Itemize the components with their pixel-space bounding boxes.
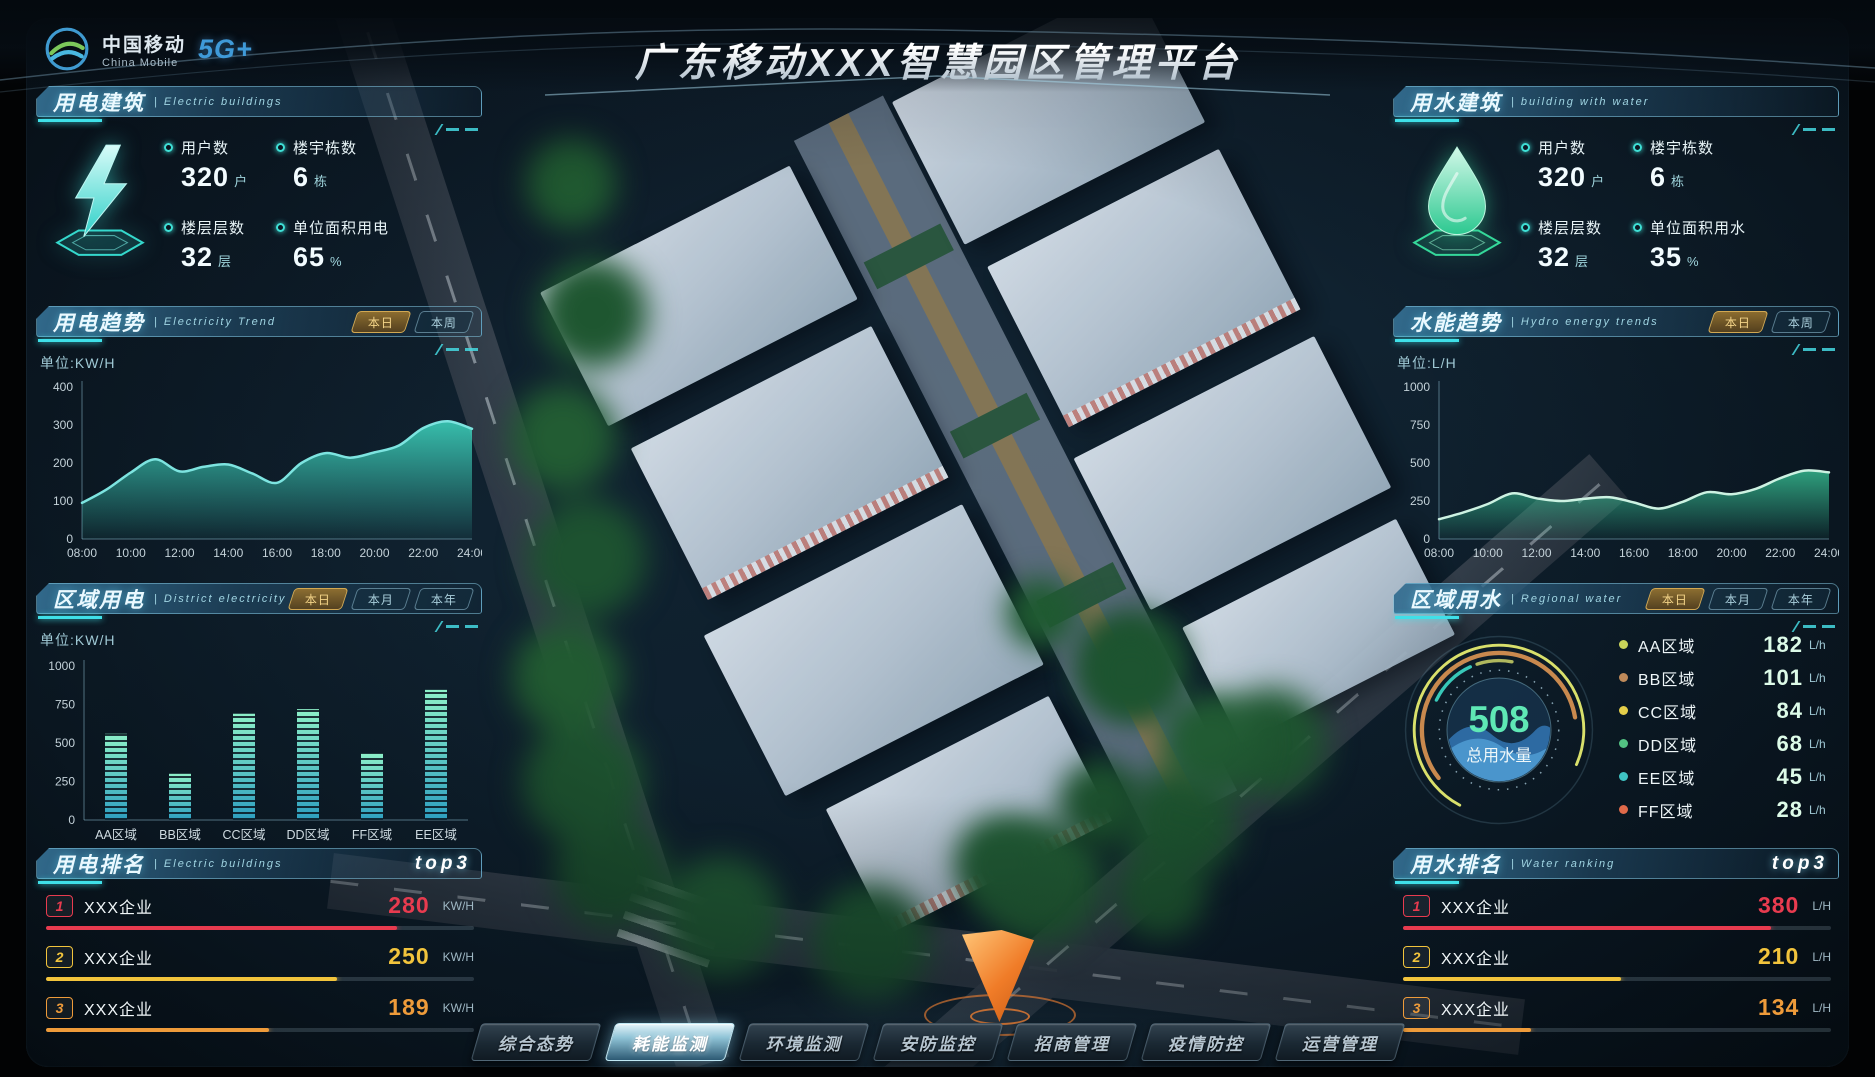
header-decoration: [1795, 344, 1835, 355]
legend-dot: [1619, 673, 1628, 682]
bullet-icon: [1521, 223, 1530, 232]
rank-unit: KW/H: [443, 899, 474, 913]
tab-group: 本日 本周: [1711, 311, 1828, 333]
stat-label: 楼宇栋数: [293, 137, 357, 158]
rank-value: 134: [1758, 994, 1799, 1021]
header-underline: [38, 339, 102, 342]
panel-subtitle: | Electric buildings: [154, 858, 282, 870]
panel-subtitle: | building with water: [1511, 96, 1649, 108]
svg-text:16:00: 16:00: [1619, 546, 1649, 560]
stat-value: 32: [1538, 242, 1570, 272]
panel-title: 水能趋势: [1410, 307, 1502, 337]
water-legend: AA区域 182 L/h BB区域 101 L/h CC区域 84 L/h: [1619, 628, 1835, 826]
tab-group: 本日 本周: [354, 311, 471, 333]
stat-value: 320: [1538, 162, 1586, 192]
panel-title: 区域用电: [53, 584, 145, 614]
tab-month[interactable]: 本月: [1707, 588, 1768, 610]
ranking-row-3: 3 XXX企业 189 KW/H: [46, 994, 474, 1021]
tab-year[interactable]: 本年: [1770, 588, 1831, 610]
nav-overview[interactable]: 综合态势: [470, 1023, 601, 1061]
panel-title: 区域用水: [1410, 584, 1502, 614]
panel-water-ranking: 用水排名 | Water ranking top3 1 XXX企业 380 L/…: [1393, 848, 1839, 1032]
svg-text:100: 100: [53, 494, 73, 508]
district-electricity-chart: 02505007501000AA区域BB区域CC区域DD区域FF区域EE区域: [36, 652, 482, 850]
svg-text:500: 500: [55, 736, 75, 750]
nav-operation-management[interactable]: 运营管理: [1274, 1023, 1405, 1061]
stat-floors: 楼层层数 32层: [164, 217, 276, 273]
svg-text:14:00: 14:00: [213, 546, 243, 560]
stat-value: 320: [181, 162, 229, 192]
ranking-row-2: 2 XXX企业 250 KW/H: [46, 943, 474, 970]
stat-value: 35: [1650, 242, 1682, 272]
stat-label: 单位面积用电: [293, 217, 389, 238]
svg-text:400: 400: [53, 380, 73, 394]
top3-badge: top3: [415, 853, 471, 875]
panel-title: 用水建筑: [1410, 87, 1502, 117]
panel-subtitle: | District electricity: [154, 593, 286, 605]
svg-text:10:00: 10:00: [1473, 546, 1503, 560]
electricity-trend-chart: 010020030040008:0010:0012:0014:0016:0018…: [36, 375, 482, 567]
rank-badge: 3: [46, 997, 73, 1019]
panel-header: 区域用电 | District electricity 本日 本月 本年: [36, 583, 482, 614]
header-underline: [1395, 339, 1459, 342]
svg-text:08:00: 08:00: [1424, 546, 1454, 560]
header-decoration: [438, 344, 478, 355]
tab-month[interactable]: 本月: [350, 588, 411, 610]
svg-text:14:00: 14:00: [1570, 546, 1600, 560]
stat-unit: 层: [1575, 254, 1589, 269]
panel-district-electricity: 区域用电 | District electricity 本日 本月 本年 单位:…: [36, 583, 482, 850]
svg-text:16:00: 16:00: [262, 546, 292, 560]
stat-label: 楼层层数: [181, 217, 245, 238]
panel-header: 区域用水 | Regional water 本日 本月 本年: [1393, 583, 1839, 614]
hydro-trend-chart: 0250500750100008:0010:0012:0014:0016:001…: [1393, 375, 1839, 567]
top3-badge: top3: [1772, 853, 1828, 875]
lightning-icon: [36, 133, 164, 273]
header-underline: [38, 616, 102, 619]
panel-header: 用水排名 | Water ranking top3: [1393, 848, 1839, 879]
bullet-icon: [276, 223, 285, 232]
rank-unit: L/H: [1812, 950, 1831, 964]
svg-text:FF区域: FF区域: [352, 828, 392, 842]
svg-text:500: 500: [1410, 456, 1430, 470]
svg-text:24:00: 24:00: [1814, 546, 1839, 560]
bottom-nav: 综合态势 耗能监测 环境监测 安防监控 招商管理 疫情防控 运营管理: [476, 1023, 1400, 1061]
panel-header: 水能趋势 | Hydro energy trends 本日 本周: [1393, 306, 1839, 337]
panel-electric-ranking: 用电排名 | Electric buildings top3 1 XXX企业 2…: [36, 848, 482, 1032]
stat-value: 6: [1650, 162, 1666, 192]
bullet-icon: [1633, 223, 1642, 232]
dashboard-stage: 中国移动 China Mobile 5G+ 广东移动XXX智慧园区管理平台 用电…: [0, 0, 1875, 1077]
rank-value: 380: [1758, 892, 1799, 919]
svg-text:12:00: 12:00: [1521, 546, 1551, 560]
svg-text:08:00: 08:00: [67, 546, 97, 560]
rank-unit: KW/H: [443, 950, 474, 964]
legend-dot: [1619, 640, 1628, 649]
svg-text:20:00: 20:00: [1716, 546, 1746, 560]
rank-name: XXX企业: [1441, 996, 1510, 1020]
stat-unit-area-power: 单位面积用电 65%: [276, 217, 482, 273]
panel-electricity-trend: 用电趋势 | Electricity Trend 本日 本周 单位:KW/H 0…: [36, 306, 482, 567]
bullet-icon: [1521, 143, 1530, 152]
stat-value: 6: [293, 162, 309, 192]
stat-value: 32: [181, 242, 213, 272]
svg-text:22:00: 22:00: [1765, 546, 1795, 560]
header-decoration: [438, 621, 478, 632]
rank-badge: 2: [46, 946, 73, 968]
tab-today[interactable]: 本日: [1644, 588, 1705, 610]
rank-value: 280: [388, 892, 429, 919]
bullet-icon: [164, 143, 173, 152]
panel-header: 用电建筑 | Electric buildings: [36, 86, 482, 117]
stat-users: 用户数 320户: [164, 137, 276, 193]
tab-year[interactable]: 本年: [413, 588, 474, 610]
rank-bar: [46, 977, 474, 981]
svg-text:22:00: 22:00: [408, 546, 438, 560]
panel-title: 用电建筑: [53, 87, 145, 117]
tab-group: 本日 本月 本年: [1648, 588, 1828, 610]
stat-label: 楼层层数: [1538, 217, 1602, 238]
panel-title: 用电趋势: [53, 307, 145, 337]
nav-environment-monitoring[interactable]: 环境监测: [738, 1023, 869, 1061]
rank-badge: 2: [1403, 946, 1430, 968]
rank-bar: [46, 926, 474, 930]
rank-bar: [1403, 926, 1831, 930]
panel-subtitle: | Hydro energy trends: [1511, 316, 1659, 328]
rank-name: XXX企业: [84, 894, 153, 918]
header-underline: [38, 119, 102, 122]
svg-text:12:00: 12:00: [164, 546, 194, 560]
total-water-value: 508: [1468, 699, 1529, 740]
panel-subtitle: | Regional water: [1511, 593, 1622, 605]
stat-unit: 户: [234, 174, 248, 189]
legend-row-ee: EE区域 45 L/h: [1619, 760, 1835, 793]
stat-unit: 层: [218, 254, 232, 269]
stat-unit: 户: [1591, 174, 1605, 189]
total-water-gauge: 508 总用水量: [1393, 624, 1605, 836]
stat-unit: 栋: [1671, 174, 1685, 189]
stat-unit: 栋: [314, 174, 328, 189]
legend-row-bb: BB区域 101 L/h: [1619, 661, 1835, 694]
stat-unit: %: [1687, 254, 1700, 269]
header-underline: [1395, 119, 1459, 122]
stat-floors: 楼层层数 32层: [1521, 217, 1633, 273]
header-underline: [38, 881, 102, 884]
svg-text:DD区域: DD区域: [286, 828, 329, 842]
tab-group: 本日 本月 本年: [291, 588, 471, 610]
svg-text:200: 200: [53, 456, 73, 470]
chart-unit-label: 单位:KW/H: [40, 353, 482, 373]
legend-row-dd: DD区域 68 L/h: [1619, 727, 1835, 760]
tab-week[interactable]: 本周: [413, 311, 474, 333]
svg-text:CC区域: CC区域: [222, 828, 265, 842]
panel-title: 用电排名: [53, 849, 145, 879]
logo-cn-text: 中国移动: [102, 30, 186, 57]
svg-text:24:00: 24:00: [457, 546, 482, 560]
china-mobile-logo: 中国移动 China Mobile 5G+: [44, 26, 253, 72]
rank-bar: [1403, 1028, 1831, 1032]
panel-electric-building: 用电建筑 | Electric buildings: [36, 86, 482, 273]
total-water-label: 总用水量: [1466, 747, 1532, 765]
svg-text:250: 250: [55, 775, 75, 789]
svg-text:0: 0: [1423, 532, 1430, 546]
stat-unit: %: [330, 254, 343, 269]
panel-subtitle: | Electric buildings: [154, 96, 282, 108]
legend-row-aa: AA区域 182 L/h: [1619, 628, 1835, 661]
stat-buildings: 楼宇栋数 6栋: [276, 137, 482, 193]
chart-unit-label: 单位:L/H: [1397, 353, 1839, 373]
header-decoration: [1795, 621, 1835, 632]
panel-header: 用水建筑 | building with water: [1393, 86, 1839, 117]
nav-energy-monitoring[interactable]: 耗能监测: [604, 1023, 735, 1061]
nav-security-monitoring[interactable]: 安防监控: [872, 1023, 1003, 1061]
rank-name: XXX企业: [84, 945, 153, 969]
svg-text:750: 750: [1410, 418, 1430, 432]
panel-header: 用电排名 | Electric buildings top3: [36, 848, 482, 879]
stat-label: 用户数: [181, 137, 229, 158]
svg-text:0: 0: [68, 813, 75, 827]
svg-text:AA区域: AA区域: [95, 828, 137, 842]
panel-title: 用水排名: [1410, 849, 1502, 879]
panel-subtitle: | Electricity Trend: [154, 316, 276, 328]
stat-label: 单位面积用水: [1650, 217, 1746, 238]
stat-users: 用户数 320户: [1521, 137, 1633, 193]
rank-badge: 1: [1403, 895, 1430, 917]
tab-today[interactable]: 本日: [287, 588, 348, 610]
water-drop-icon: [1393, 133, 1521, 273]
rank-value: 189: [388, 994, 429, 1021]
svg-text:18:00: 18:00: [311, 546, 341, 560]
rank-value: 250: [388, 943, 429, 970]
china-mobile-logo-icon: [44, 26, 90, 72]
stat-buildings: 楼宇栋数 6栋: [1633, 137, 1839, 193]
ranking-row-1: 1 XXX企业 380 L/H: [1403, 892, 1831, 919]
legend-dot: [1619, 805, 1628, 814]
svg-text:750: 750: [55, 698, 75, 712]
rank-bar: [46, 1028, 474, 1032]
stat-value: 65: [293, 242, 325, 272]
legend-dot: [1619, 739, 1628, 748]
rank-value: 210: [1758, 943, 1799, 970]
panel-subtitle: | Water ranking: [1511, 858, 1615, 870]
svg-text:10:00: 10:00: [116, 546, 146, 560]
bullet-icon: [1633, 143, 1642, 152]
svg-text:BB区域: BB区域: [159, 828, 201, 842]
rank-badge: 3: [1403, 997, 1430, 1019]
nav-epidemic-prevention[interactable]: 疫情防控: [1140, 1023, 1271, 1061]
rank-name: XXX企业: [1441, 894, 1510, 918]
tab-today[interactable]: 本日: [350, 311, 411, 333]
svg-text:1000: 1000: [48, 659, 75, 673]
stat-unit-area-water: 单位面积用水 35%: [1633, 217, 1839, 273]
chart-unit-label: 单位:KW/H: [40, 630, 482, 650]
svg-text:18:00: 18:00: [1668, 546, 1698, 560]
rank-bar: [1403, 977, 1831, 981]
svg-text:1000: 1000: [1403, 380, 1430, 394]
bullet-icon: [276, 143, 285, 152]
svg-text:250: 250: [1410, 494, 1430, 508]
ranking-row-1: 1 XXX企业 280 KW/H: [46, 892, 474, 919]
legend-row-cc: CC区域 84 L/h: [1619, 694, 1835, 727]
panel-water-building: 用水建筑 | building with water: [1393, 86, 1839, 273]
rank-unit: KW/H: [443, 1001, 474, 1015]
svg-text:0: 0: [66, 532, 73, 546]
legend-dot: [1619, 706, 1628, 715]
svg-text:20:00: 20:00: [359, 546, 389, 560]
panel-header: 用电趋势 | Electricity Trend 本日 本周: [36, 306, 482, 337]
ranking-row-3: 3 XXX企业 134 L/H: [1403, 994, 1831, 1021]
stat-label: 用户数: [1538, 137, 1586, 158]
rank-name: XXX企业: [84, 996, 153, 1020]
header-decoration: [1795, 124, 1835, 135]
tab-today[interactable]: 本日: [1707, 311, 1768, 333]
header-underline: [1395, 881, 1459, 884]
rank-unit: L/H: [1812, 1001, 1831, 1015]
tab-week[interactable]: 本周: [1770, 311, 1831, 333]
rank-badge: 1: [46, 895, 73, 917]
stat-label: 楼宇栋数: [1650, 137, 1714, 158]
legend-dot: [1619, 772, 1628, 781]
logo-en-text: China Mobile: [102, 57, 186, 69]
legend-row-ff: FF区域 28 L/h: [1619, 793, 1835, 826]
header-underline: [1395, 616, 1459, 619]
panel-hydro-trend: 水能趋势 | Hydro energy trends 本日 本周 单位:L/H …: [1393, 306, 1839, 567]
svg-text:300: 300: [53, 418, 73, 432]
svg-text:EE区域: EE区域: [415, 828, 457, 842]
rank-unit: L/H: [1812, 899, 1831, 913]
panel-regional-water: 区域用水 | Regional water 本日 本月 本年: [1393, 583, 1839, 836]
header-decoration: [438, 124, 478, 135]
nav-investment-management[interactable]: 招商管理: [1006, 1023, 1137, 1061]
ranking-row-2: 2 XXX企业 210 L/H: [1403, 943, 1831, 970]
rank-name: XXX企业: [1441, 945, 1510, 969]
5g-badge: 5G+: [198, 34, 253, 65]
bullet-icon: [164, 223, 173, 232]
